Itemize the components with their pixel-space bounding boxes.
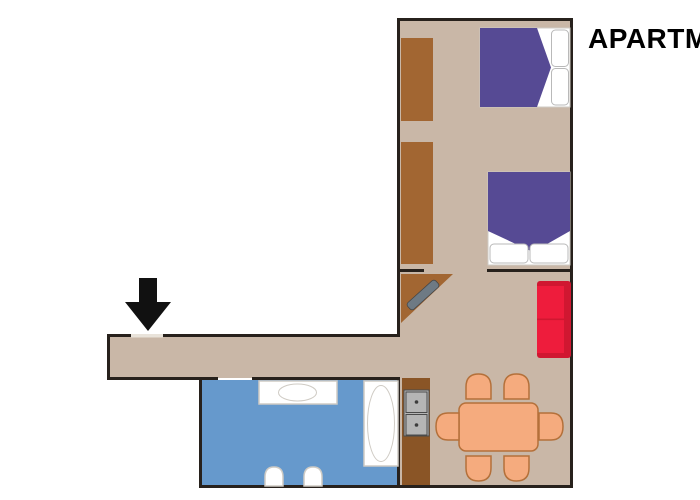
toilet-icon [304, 467, 322, 486]
dining-chair [466, 374, 491, 399]
dining-chair [436, 413, 459, 440]
sofa [537, 281, 571, 358]
wall-top [397, 18, 573, 21]
sofa-cushion-divider [537, 319, 564, 321]
apartment-floor-plan [0, 0, 700, 500]
entrance-door-threshold [131, 334, 163, 338]
wall-bedroom-divider-right [487, 269, 573, 272]
wardrobe-lower [401, 142, 433, 264]
dining-chair [504, 374, 529, 399]
wall-corridor-top-right [162, 334, 400, 337]
page-title: APARTM [588, 23, 700, 55]
floor-plan-canvas: APARTM [0, 0, 700, 500]
wardrobe-upper [401, 38, 433, 121]
bed-blanket [480, 28, 551, 107]
toilet-icon [265, 467, 283, 486]
dining-chair [539, 413, 563, 440]
pillow [490, 244, 528, 263]
drain-icon [415, 423, 419, 427]
wall-corridor-top-left [107, 334, 132, 337]
dining-table [459, 403, 538, 451]
wall-bottom [199, 485, 573, 488]
double-bed-top [480, 28, 570, 107]
wall-bedroom-divider-left [397, 269, 424, 272]
wall-left-upper [397, 18, 400, 337]
dining-chair [466, 456, 491, 481]
kitchen [402, 378, 430, 485]
pillow [552, 30, 569, 67]
washbasin-icon [279, 384, 317, 401]
entrance-arrow-icon [125, 278, 171, 331]
wall-corridor-left [107, 334, 110, 380]
pillow [530, 244, 568, 263]
pillow [552, 69, 569, 106]
double-bed-bottom [488, 172, 570, 265]
bathtub-basin [368, 386, 395, 462]
corridor-floor [109, 336, 400, 378]
dining-chair [504, 456, 529, 481]
wall-bathroom-left [199, 377, 202, 486]
wall-bathroom-top [252, 377, 400, 380]
drain-icon [415, 400, 419, 404]
